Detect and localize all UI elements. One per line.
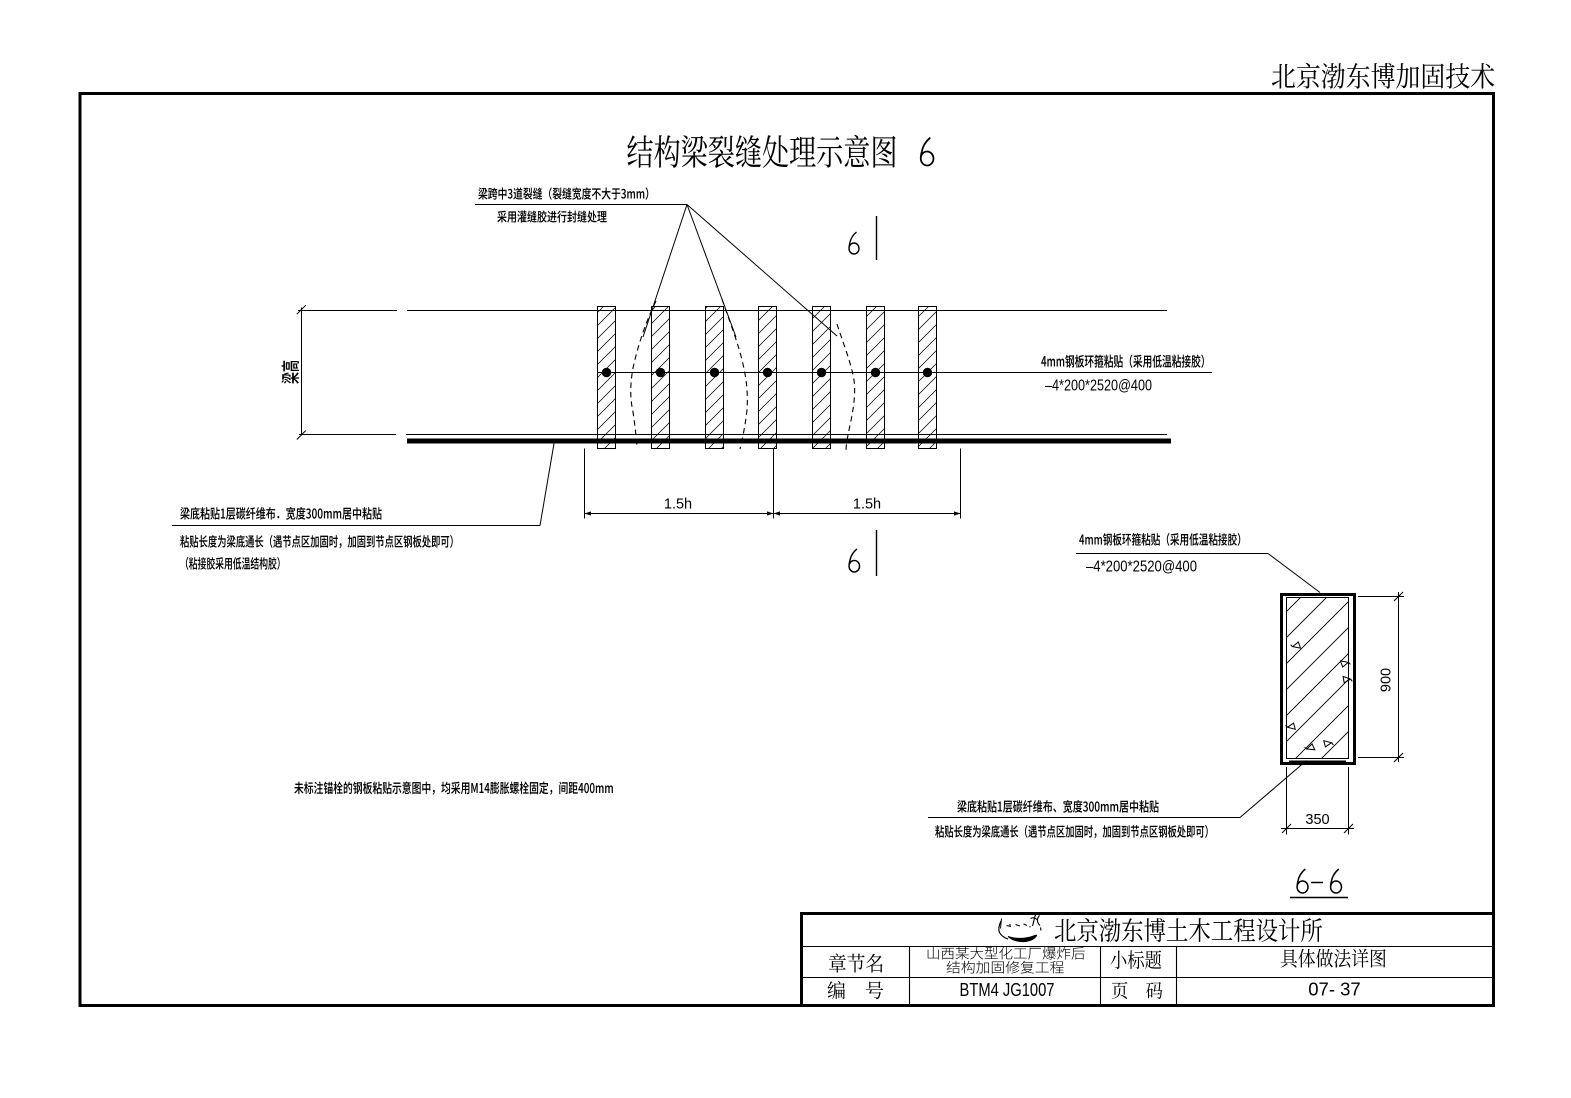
svg-text:350: 350 (1305, 812, 1329, 828)
svg-text:–4*200*2520@400: –4*200*2520@400 (1045, 378, 1152, 395)
svg-text:1.5h: 1.5h (664, 497, 692, 513)
svg-text:BTM4 JG1007: BTM4 JG1007 (960, 979, 1055, 1000)
svg-text:1.5h: 1.5h (853, 497, 881, 513)
svg-text:900: 900 (1379, 668, 1395, 692)
svg-text:–4*200*2520@400: –4*200*2520@400 (1086, 559, 1197, 576)
svg-text:07- 37: 07- 37 (1308, 979, 1360, 1000)
